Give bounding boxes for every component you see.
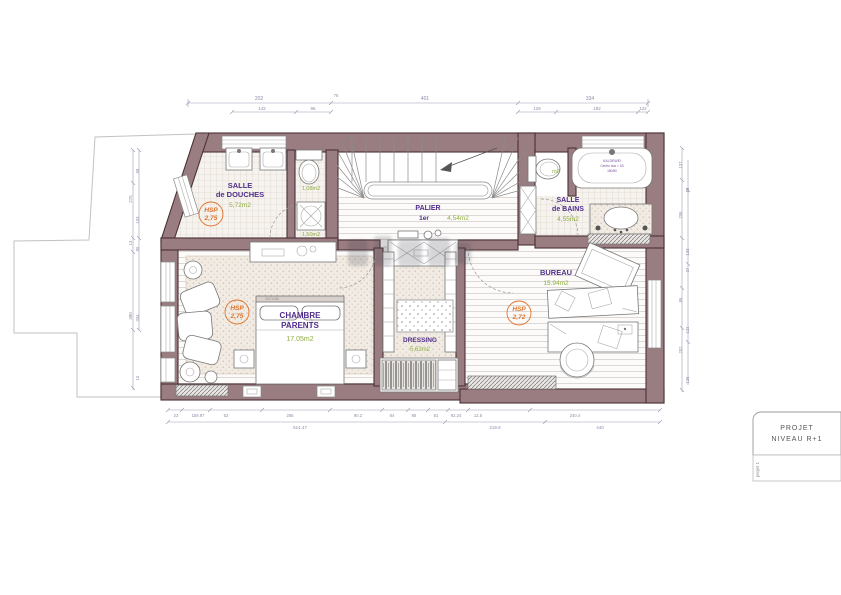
dim-label: 96 xyxy=(310,106,316,111)
dim-label: 206 xyxy=(678,211,683,219)
dim-label: 103 xyxy=(135,216,140,224)
dim-label: 334 xyxy=(135,314,140,322)
dim-label: 440 xyxy=(596,425,604,430)
hsp-value: 2,75 xyxy=(204,215,218,222)
dim-label: 137 xyxy=(678,161,683,169)
hsp-label: HSP xyxy=(512,306,526,313)
hsp-label: HSP xyxy=(204,207,218,214)
dim-label: 92.24 xyxy=(451,413,462,418)
dim-label: 133 xyxy=(685,248,690,256)
window-left-1 xyxy=(161,262,175,302)
dim-label: 159.97 xyxy=(192,413,205,418)
floor-plan-page: SALLE de DOUCHES 5,72m2 HSP 2,75 1,08m2 … xyxy=(0,0,841,595)
dim-label: 58 xyxy=(135,168,140,173)
dim-label: 122 xyxy=(685,326,690,334)
chambre-code: XXCY060 xyxy=(265,297,279,301)
title-side-label: projet 1 xyxy=(755,461,760,477)
window-right xyxy=(648,280,661,348)
dim-label: 202 xyxy=(255,96,264,102)
dim-label: 52 xyxy=(224,413,229,418)
dim-label: 88 xyxy=(685,187,690,192)
chambre-label-1: CHAMBRE xyxy=(280,311,322,320)
window-top-bains xyxy=(582,136,644,149)
window-left-3 xyxy=(161,358,175,382)
dim-label: 380 xyxy=(128,312,133,320)
dim-label: 23 xyxy=(174,413,179,418)
dressing-label: DRESSING xyxy=(403,337,437,344)
palier-label: PALIER xyxy=(415,205,440,212)
hsp-value: 2,72 xyxy=(512,314,526,321)
douches-label-2: de DOUCHES xyxy=(216,190,264,199)
tall-cabinet-icon xyxy=(520,186,536,234)
hsp-label: HSP xyxy=(230,305,244,312)
sink-icon xyxy=(226,148,252,170)
dim-label: 401 xyxy=(421,96,430,102)
bains-label-1: SALLE xyxy=(557,197,580,204)
wc-area: 1,08m2 xyxy=(302,186,320,192)
dim-label: 128 xyxy=(533,106,541,111)
window-left-2 xyxy=(161,306,175,352)
douches-label-1: SALLE xyxy=(228,181,253,190)
radiator-icon xyxy=(588,234,650,244)
stool-icon xyxy=(205,371,217,383)
vanity-icon xyxy=(590,204,652,234)
wardrobe-icon xyxy=(380,358,458,392)
dim-label: 219.9 xyxy=(489,425,501,430)
radiator-icon xyxy=(176,385,228,396)
chambre-area: 17.05m2 xyxy=(286,336,313,343)
dim-label: 85 xyxy=(135,246,140,251)
dim-label: 15 xyxy=(135,375,140,380)
title-block-lower xyxy=(753,455,841,481)
tub-brand: KALDEWEI xyxy=(603,159,621,163)
dim-label: 182 xyxy=(593,106,601,111)
sink-icon xyxy=(260,148,286,170)
side-table-icon xyxy=(184,261,202,279)
palier-area: 4,54m2 xyxy=(447,215,469,222)
wc2-area: m2 xyxy=(552,169,560,175)
dressing-rug xyxy=(397,300,453,332)
dim-label: 75 xyxy=(334,93,339,98)
stair-railing xyxy=(364,182,492,199)
vent-1 xyxy=(243,386,261,397)
palier-level: 1er xyxy=(419,215,429,222)
bains-label-2: de BAINS xyxy=(552,206,584,213)
desk-icon xyxy=(547,286,638,319)
dimensions-left: 58 275 103 13 85 380 334 15 xyxy=(128,148,141,390)
dim-label: 202 xyxy=(678,346,683,354)
vent-2 xyxy=(317,386,335,397)
floor-plan-drawing: SALLE de DOUCHES 5,72m2 HSP 2,75 1,08m2 … xyxy=(0,0,841,595)
washing-machine-icon xyxy=(297,202,325,230)
hsp-value: 2,75 xyxy=(230,313,244,320)
bains-area: 4,55m2 xyxy=(557,216,579,223)
dim-label: 142 xyxy=(258,106,266,111)
window-top-douches xyxy=(222,136,286,149)
dim-label: 126 xyxy=(685,376,690,384)
dim-label: 265 xyxy=(287,413,295,418)
douches-area: 5,72m2 xyxy=(229,202,251,209)
dim-label: 37 xyxy=(685,267,690,272)
dimensions-bottom: 23 159.97 52 265 90.2 84 85 81 92.24 12.… xyxy=(166,408,662,430)
desk-icon xyxy=(548,322,638,352)
tub-size: 180/80 xyxy=(607,169,617,173)
dim-label: 13 xyxy=(128,240,133,245)
side-table-icon xyxy=(180,362,200,382)
dimensions-top: 202 75 401 334 142 96 128 182 122 xyxy=(186,93,650,114)
dim-label: 240.4 xyxy=(570,413,581,418)
dim-label: 85 xyxy=(412,413,417,418)
bureau-label: BUREAU xyxy=(540,268,572,277)
radiator-icon xyxy=(468,376,556,389)
chambre-label-2: PARENTS xyxy=(281,321,319,330)
dimensions-right: 137 88 206 133 37 86 122 202 126 xyxy=(678,146,690,392)
dressing-area: 5,62m2 xyxy=(410,347,431,353)
title-block: PROJET NIVEAU R+1 projet 1 xyxy=(753,412,841,481)
tub-model: Centro duo = 1B xyxy=(600,164,623,168)
dim-label: 275 xyxy=(128,195,133,203)
title-line-1: PROJET xyxy=(780,425,814,432)
buanderie-area: 1,50m2 xyxy=(302,232,320,238)
dim-label: 86 xyxy=(678,297,683,302)
console-icon xyxy=(250,242,336,262)
dim-label: 514.47 xyxy=(293,425,307,430)
title-line-2: NIVEAU R+1 xyxy=(771,436,822,443)
dim-label: 81 xyxy=(434,413,439,418)
nightstand-icon xyxy=(234,350,254,368)
dim-label: 334 xyxy=(586,96,595,102)
dim-label: 90.2 xyxy=(354,413,363,418)
dim-label: 122 xyxy=(640,106,648,111)
dim-label: 84 xyxy=(390,413,395,418)
bureau-area: 15.94m2 xyxy=(543,280,569,287)
nightstand-icon xyxy=(346,350,366,368)
bathtub-icon xyxy=(572,148,652,188)
dim-label: 12.5 xyxy=(474,413,483,418)
